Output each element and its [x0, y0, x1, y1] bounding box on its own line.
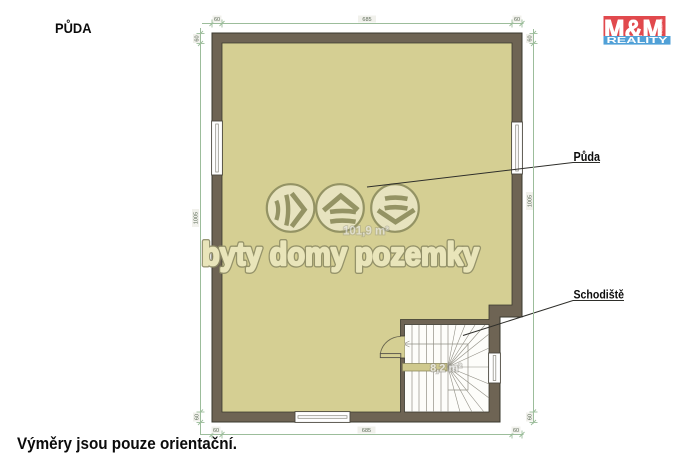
svg-text:Schodiště: Schodiště: [574, 290, 625, 302]
svg-text:685: 685: [362, 428, 371, 434]
svg-text:60: 60: [528, 35, 534, 41]
svg-text:60: 60: [214, 17, 220, 23]
svg-text:685: 685: [362, 17, 371, 23]
svg-text:60: 60: [195, 35, 201, 41]
svg-text:1005: 1005: [194, 212, 200, 224]
svg-text:60: 60: [195, 414, 201, 420]
svg-text:Výměry jsou pouze orientační.: Výměry jsou pouze orientační.: [17, 435, 237, 453]
svg-text:60: 60: [514, 17, 520, 23]
svg-text:REALITY: REALITY: [607, 36, 669, 45]
svg-text:60: 60: [213, 428, 219, 434]
svg-text:Půda: Půda: [574, 150, 601, 164]
svg-text:60: 60: [513, 428, 519, 434]
svg-text:byty domy pozemky: byty domy pozemky: [202, 236, 479, 272]
svg-text:PŮDA: PŮDA: [55, 18, 92, 36]
svg-text:1005: 1005: [528, 195, 534, 207]
svg-text:8,2 m²: 8,2 m²: [430, 363, 462, 375]
svg-text:HOLDING: HOLDING: [660, 18, 664, 34]
svg-text:60: 60: [528, 414, 534, 420]
